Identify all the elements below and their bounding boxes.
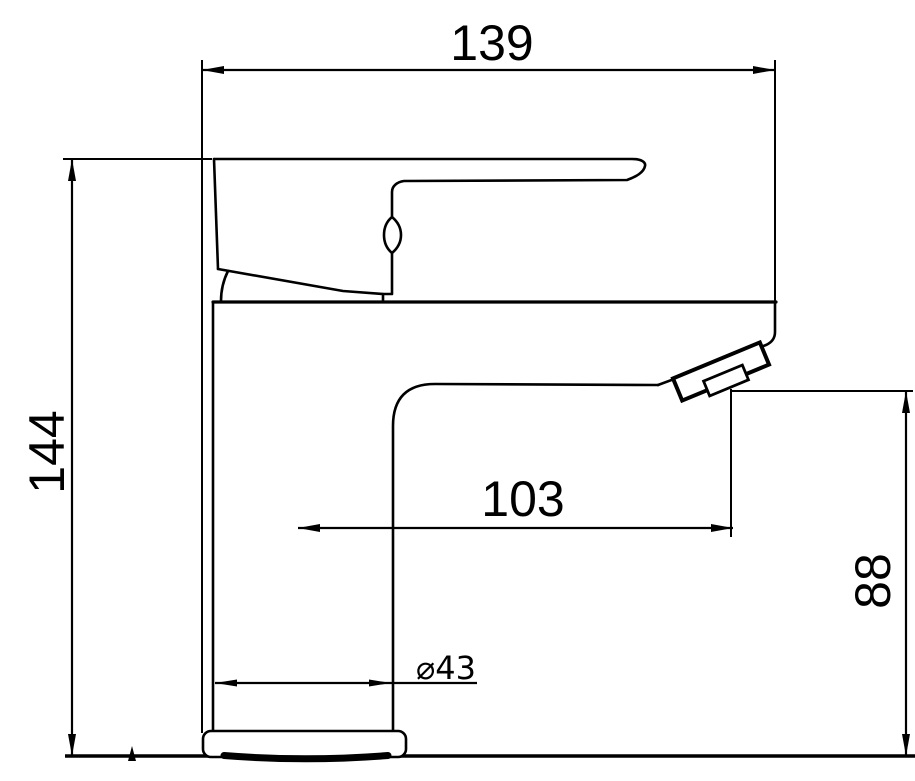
arrow-reach-right-icon <box>711 524 733 532</box>
arrow-spout-height-top-icon <box>902 391 910 413</box>
handle-neck-bulge-left <box>384 217 392 253</box>
handle-skirt-diagonal <box>218 269 383 294</box>
spout-aerator <box>673 342 771 406</box>
arrow-width-right-icon <box>753 66 775 74</box>
dim-text-spout-reach: 103 <box>481 471 564 527</box>
drawing-canvas: 139 144 103 88 ⌀43 <box>0 0 915 781</box>
dim-text-spout-height: 88 <box>845 553 901 609</box>
handle-neck-bulge-right <box>392 217 401 253</box>
ground-reference <box>65 746 915 761</box>
arrow-height-bottom-icon <box>68 734 76 756</box>
faucet-dimension-drawing: 139 144 103 88 ⌀43 <box>0 0 915 781</box>
arrow-spout-height-bottom-icon <box>902 734 910 756</box>
dimension-overall-height <box>63 159 212 756</box>
handle-back-edge <box>214 159 218 269</box>
arrow-base-diameter-left-icon <box>215 680 237 687</box>
arrow-width-left-icon <box>202 66 224 74</box>
faucet-outline <box>213 159 776 731</box>
arrow-reach-left-icon <box>298 524 320 532</box>
dim-text-overall-width: 139 <box>450 15 533 71</box>
handle-lever-outline <box>214 159 645 217</box>
arrow-base-diameter-right-icon <box>369 680 391 687</box>
dim-text-base-diameter: ⌀43 <box>416 649 476 687</box>
baseline-tick-arrow-icon <box>128 746 136 761</box>
arrow-height-top-icon <box>68 159 76 181</box>
handle-neck-lower <box>383 253 392 301</box>
base-bottom-shadow-band <box>224 756 388 759</box>
handle-back-arc <box>221 271 228 301</box>
dim-text-overall-height: 144 <box>19 410 75 493</box>
